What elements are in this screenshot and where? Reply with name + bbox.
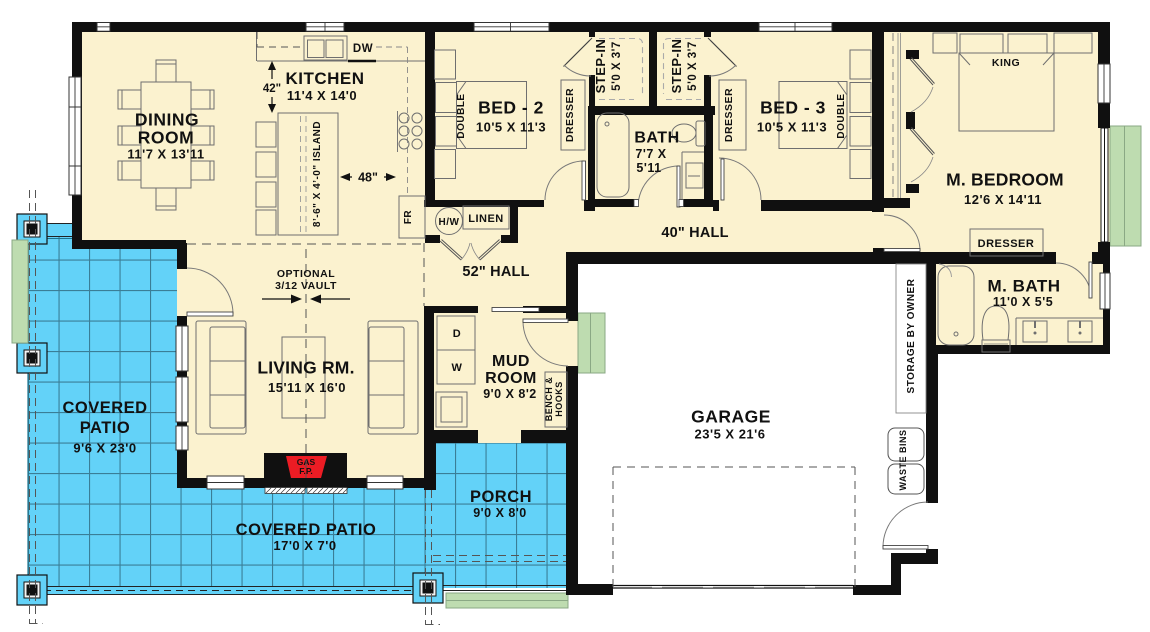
svg-text:STEP-IN: STEP-IN: [669, 39, 684, 94]
svg-text:23'5 X 21'6: 23'5 X 21'6: [695, 427, 766, 442]
svg-text:7'7 X: 7'7 X: [635, 147, 666, 161]
svg-text:OPTIONAL: OPTIONAL: [277, 268, 335, 280]
svg-text:PORCH: PORCH: [470, 488, 532, 506]
svg-text:BENCH &: BENCH &: [544, 377, 554, 422]
svg-text:DRESSER: DRESSER: [564, 88, 576, 142]
svg-text:W: W: [452, 362, 463, 374]
svg-text:11'0 X 5'5: 11'0 X 5'5: [993, 295, 1053, 309]
svg-text:ROOM: ROOM: [138, 128, 194, 148]
svg-text:GARAGE: GARAGE: [691, 407, 771, 427]
svg-text:STORAGE BY OWNER: STORAGE BY OWNER: [906, 278, 917, 393]
svg-text:COVERED: COVERED: [62, 399, 147, 417]
svg-text:12'6 X 14'11: 12'6 X 14'11: [964, 192, 1042, 207]
svg-text:HOOKS: HOOKS: [554, 381, 564, 417]
svg-text:11'7 X 13'11: 11'7 X 13'11: [127, 147, 204, 162]
svg-text:DOUBLE: DOUBLE: [456, 93, 467, 138]
svg-text:DOUBLE: DOUBLE: [836, 93, 847, 138]
svg-text:17'0 X 7'0: 17'0 X 7'0: [273, 538, 336, 553]
svg-text:COVERED PATIO: COVERED PATIO: [236, 521, 377, 539]
svg-text:PATIO: PATIO: [80, 419, 130, 437]
svg-text:KING: KING: [992, 57, 1020, 69]
svg-text:5'0 X 3'7: 5'0 X 3'7: [611, 41, 623, 91]
svg-text:D: D: [453, 328, 461, 340]
svg-text:LIVING RM.: LIVING RM.: [257, 358, 354, 378]
svg-text:DRESSER: DRESSER: [978, 238, 1035, 250]
svg-text:9'0 X 8'2: 9'0 X 8'2: [483, 387, 537, 401]
svg-text:M. BEDROOM: M. BEDROOM: [946, 170, 1064, 190]
svg-text:FR: FR: [403, 210, 414, 225]
svg-text:M. BATH: M. BATH: [987, 277, 1060, 296]
svg-text:48": 48": [358, 171, 378, 185]
svg-text:BED - 3: BED - 3: [760, 98, 826, 118]
svg-text:42": 42": [263, 83, 281, 95]
svg-text:3/12 VAULT: 3/12 VAULT: [275, 280, 337, 292]
svg-text:DW: DW: [353, 43, 373, 55]
svg-text:WASTE BINS: WASTE BINS: [898, 429, 908, 490]
svg-text:11'4 X 14'0: 11'4 X 14'0: [287, 88, 357, 103]
svg-text:STEP-IN: STEP-IN: [593, 39, 608, 94]
svg-text:5'0 X 3'7: 5'0 X 3'7: [687, 41, 699, 91]
svg-text:H/W: H/W: [439, 217, 460, 228]
svg-text:BED - 2: BED - 2: [478, 98, 544, 118]
svg-text:DINING: DINING: [135, 110, 199, 130]
svg-text:40" HALL: 40" HALL: [661, 225, 728, 241]
svg-text:15'11 X 16'0: 15'11 X 16'0: [268, 380, 346, 395]
svg-text:DRESSER: DRESSER: [723, 88, 735, 142]
svg-text:10'5 X 11'3: 10'5 X 11'3: [757, 120, 827, 135]
svg-text:MUD: MUD: [492, 353, 530, 370]
svg-text:5'11: 5'11: [636, 161, 661, 175]
svg-text:9'6 X 23'0: 9'6 X 23'0: [73, 441, 136, 456]
svg-text:9'0 X 8'0: 9'0 X 8'0: [473, 506, 527, 520]
svg-text:52" HALL: 52" HALL: [462, 264, 529, 280]
svg-text:8’-6" X 4’-0" ISLAND: 8’-6" X 4’-0" ISLAND: [312, 121, 323, 227]
svg-text:KITCHEN: KITCHEN: [285, 69, 364, 88]
svg-text:ROOM: ROOM: [485, 370, 537, 387]
svg-text:BATH: BATH: [634, 130, 679, 147]
svg-text:LINEN: LINEN: [468, 213, 504, 225]
svg-text:10'5 X 11'3: 10'5 X 11'3: [476, 120, 546, 135]
